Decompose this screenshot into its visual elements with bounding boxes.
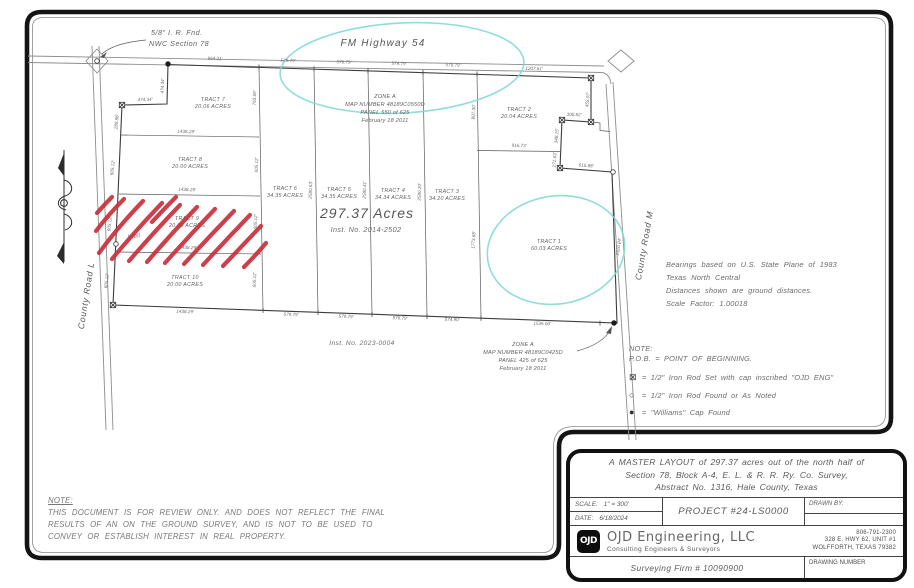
survey-plat-sheet: FM Highway 54 5/8" I. R. Fnd. NWC Sectio… <box>0 0 914 588</box>
svg-text:20.04 ACRES: 20.04 ACRES <box>500 114 537 120</box>
svg-text:1438.29': 1438.29' <box>178 187 196 193</box>
description-line1: A MASTER LAYOUT of 297.37 acres out of t… <box>609 456 864 469</box>
svg-text:MAP NUMBER 48189C0550D: MAP NUMBER 48189C0550D <box>345 102 425 108</box>
iron-rod-found-symbol <box>95 59 100 64</box>
iron-rod-set-symbol <box>588 119 593 124</box>
williams-cap-symbol <box>611 320 616 325</box>
iron-rod-set-symbol <box>110 302 115 307</box>
svg-text:TRACT 10: TRACT 10 <box>171 275 198 281</box>
tract-label-10: TRACT 1020.00 ACRES <box>166 275 203 288</box>
legend-item-text: = 1/2" Iron Rod Set with cap inscribed "… <box>642 373 833 382</box>
svg-text:TRACT 2: TRACT 2 <box>507 107 531 113</box>
legend-title: NOTE: <box>629 344 889 353</box>
svg-text:TRACT 1: TRACT 1 <box>537 239 561 245</box>
svg-text:1920.84': 1920.84' <box>615 238 622 256</box>
bearings-line4: Scale Factor: 1.00018 <box>666 297 906 310</box>
svg-text:PANEL 550 of 625: PANEL 550 of 625 <box>360 110 410 116</box>
corner-note-line1: 5/8" I. R. Fnd. <box>151 28 203 37</box>
corner-note-leader <box>100 40 146 58</box>
bearings-note: Bearings based on U.S. State Plane of 19… <box>666 258 906 310</box>
scale-cell: SCALE: 1" = 300' <box>570 498 662 512</box>
company-names: OJD Engineering, LLC Consulting Engineer… <box>607 530 777 553</box>
company-tagline: Consulting Engineers & Surveyors <box>607 546 777 553</box>
county-road-l-label: County Road L <box>76 261 96 329</box>
svg-text:February 18 2011: February 18 2011 <box>500 366 547 372</box>
tract-label-7: TRACT 720.06 ACRES <box>194 97 231 110</box>
legend-item-text: = "Williams" Cap Found <box>642 408 730 417</box>
svg-text:579.79': 579.79' <box>337 59 352 64</box>
svg-text:20.00 ACRES: 20.00 ACRES <box>166 282 203 288</box>
zone-north-label: ZONE A MAP NUMBER 48189C0550D PANEL 550 … <box>345 94 425 124</box>
review-line2: RESULTS OF AN ON THE GROUND SURVEY, AND … <box>48 519 448 531</box>
tract-label-4: TRACT 434.34 ACRES <box>375 188 411 201</box>
svg-text:579.79': 579.79' <box>284 312 299 318</box>
drawing-number-label: DRAWING NUMBER <box>805 557 903 578</box>
svg-text:300.82': 300.82' <box>567 112 582 118</box>
svg-text:474.34': 474.34' <box>160 78 166 93</box>
road-intersection-diamond-east <box>608 50 634 72</box>
svg-text:TRACT 4: TRACT 4 <box>381 188 405 194</box>
fm-highway-54-road <box>28 56 604 73</box>
bearings-line2: Texas North Central <box>666 271 906 284</box>
iron-rod-set-symbol <box>119 102 124 107</box>
svg-text:605.12': 605.12' <box>103 273 110 288</box>
iron-rod-set-symbol <box>559 117 564 122</box>
highway-label: FM Highway 54 <box>340 38 425 49</box>
svg-text:579.79': 579.79' <box>339 314 354 320</box>
drawn-by-value <box>805 514 903 525</box>
svg-text:1438.29': 1438.29' <box>176 309 194 315</box>
svg-text:605.12': 605.12' <box>109 160 116 175</box>
svg-text:February 18 2011: February 18 2011 <box>362 118 409 124</box>
svg-text:615.88': 615.88' <box>578 162 593 168</box>
company-address: 806-791-2300 328 E. HWY 62, UNIT #1 WOLF… <box>784 530 896 553</box>
tract-label-2: TRACT 220.04 ACRES <box>500 107 537 120</box>
williams-cap-icon: ● <box>629 407 642 417</box>
svg-text:574.90': 574.90' <box>445 317 460 323</box>
surveying-firm: Surveying Firm # 10090900 <box>570 557 805 578</box>
tract9-red-hatch <box>96 197 266 267</box>
county-road-m-label: County Road M <box>633 210 655 281</box>
legend-note: NOTE: P.O.B. = POINT OF BEGINNING. ⊠ = 1… <box>629 344 889 424</box>
svg-text:579.79': 579.79' <box>393 315 408 321</box>
company-name: OJD Engineering, LLC <box>607 530 777 545</box>
review-disclaimer: NOTE: THIS DOCUMENT IS FOR REVIEW ONLY. … <box>48 495 448 543</box>
svg-text:34.34 ACRES: 34.34 ACRES <box>375 195 411 201</box>
svg-text:289.86': 289.86' <box>113 114 120 130</box>
svg-text:271.63': 271.63' <box>551 152 557 168</box>
svg-text:474.34': 474.34' <box>137 97 152 102</box>
tract-label-6: TRACT 634.35 ACRES <box>267 186 303 199</box>
svg-text:807.30': 807.30' <box>471 104 477 119</box>
title-block-info-row: SCALE: 1" = 300' DATE: 6/18/2024 PROJECT… <box>570 498 903 526</box>
iron-rod-set-symbol <box>557 165 562 170</box>
zone-south-leader <box>577 326 612 351</box>
south-instrument: Inst. No. 2023-0004 <box>329 340 395 347</box>
svg-text:2580.20': 2580.20' <box>417 183 423 202</box>
tract-label-5: TRACT 534.35 ACRES <box>321 187 357 200</box>
iron-rod-set-symbol <box>588 75 593 80</box>
title-block-bottom-row: Surveying Firm # 10090900 DRAWING NUMBER <box>570 557 903 578</box>
svg-text:579.79': 579.79' <box>392 61 407 66</box>
total-acreage-label: 297.37 Acres <box>319 205 414 221</box>
review-title: NOTE: <box>48 495 448 507</box>
iron-rod-found-icon: ○ <box>629 390 642 400</box>
drawn-by-cell: DRAWN BY: <box>805 498 903 525</box>
svg-text:2580.41': 2580.41' <box>362 181 368 200</box>
svg-text:579.79': 579.79' <box>281 58 296 63</box>
scale-value: 1" = 300' <box>604 501 629 508</box>
svg-text:2580.63': 2580.63' <box>308 181 314 200</box>
iron-rod-found-symbol <box>611 170 616 175</box>
svg-text:60.03 ACRES: 60.03 ACRES <box>531 246 567 252</box>
zone-south-label: ZONE A MAP NUMBER 48189C0425D PANEL 425 … <box>483 342 563 372</box>
corner-note-line2: NWC Section 78 <box>149 39 209 48</box>
svg-text:1773.68': 1773.68' <box>471 231 477 249</box>
bearings-line1: Bearings based on U.S. State Plane of 19… <box>666 258 906 271</box>
company-phone: 806-791-2300 <box>784 530 896 538</box>
company-address-line1: 328 E. HWY 62, UNIT #1 <box>784 537 896 545</box>
project-number: PROJECT #24-LS0000 <box>663 498 805 525</box>
tract-label-8: TRACT 820.00 ACRES <box>171 157 208 170</box>
svg-text:ZONE A: ZONE A <box>373 94 396 100</box>
bearings-line3: Distances shown are ground distances. <box>666 284 906 297</box>
review-line3: CONVEY OR ESTABLISH INTEREST IN REAL PRO… <box>48 531 448 543</box>
iron-rod-set-icon: ⊠ <box>629 372 642 383</box>
svg-text:TRACT 5: TRACT 5 <box>327 187 351 193</box>
williams-cap-symbol <box>165 61 170 66</box>
company-row: OJD OJD Engineering, LLC Consulting Engi… <box>570 526 903 557</box>
svg-text:1535.00': 1535.00' <box>533 321 551 327</box>
company-logo: OJD <box>577 530 600 553</box>
svg-text:20.00 ACRES: 20.00 ACRES <box>171 164 208 170</box>
drawn-by-label: DRAWN BY: <box>805 498 903 514</box>
svg-text:TRACT 7: TRACT 7 <box>201 97 226 103</box>
svg-text:605.12': 605.12' <box>252 272 258 287</box>
north-arrow <box>57 150 72 264</box>
legend-item-iron-rod-found: ○ = 1/2" Iron Rod Found or As Noted <box>629 390 889 400</box>
svg-text:348.15': 348.15' <box>553 128 559 143</box>
svg-text:20.06 ACRES: 20.06 ACRES <box>194 104 231 110</box>
tract-label-1: TRACT 160.03 ACRES <box>531 239 567 252</box>
svg-text:34.35 ACRES: 34.35 ACRES <box>321 194 357 200</box>
svg-text:455.07': 455.07' <box>584 92 591 107</box>
svg-text:605.12': 605.12' <box>254 157 260 172</box>
total-acreage-instrument: Inst. No. 2014-2502 <box>331 225 402 234</box>
svg-text:916.73': 916.73' <box>512 143 527 149</box>
svg-text:MAP NUMBER 48189C0425D: MAP NUMBER 48189C0425D <box>483 350 563 356</box>
description-line2: Section 78, Block A-4, E. L. & R. R. Ry.… <box>625 469 848 482</box>
title-block-description: A MASTER LAYOUT of 297.37 acres out of t… <box>570 453 903 498</box>
svg-text:TRACT 8: TRACT 8 <box>178 157 202 163</box>
svg-text:763.69': 763.69' <box>252 90 258 105</box>
legend-pob: P.O.B. = POINT OF BEGINNING. <box>629 354 889 363</box>
date-value: 6/18/2024 <box>599 515 627 522</box>
date-cell: DATE: 6/18/2024 <box>570 512 662 525</box>
scale-date-cells: SCALE: 1" = 300' DATE: 6/18/2024 <box>570 498 663 525</box>
iron-rod-found-symbol <box>114 242 119 247</box>
legend-item-williams-cap: ● = "Williams" Cap Found <box>629 407 889 417</box>
svg-text:34.20 ACRES: 34.20 ACRES <box>429 196 465 202</box>
svg-text:1438.29': 1438.29' <box>177 129 195 135</box>
date-label: DATE: <box>575 515 593 522</box>
company-address-line2: WOLFFORTH, TEXAS 79382 <box>784 545 896 553</box>
svg-text:PANEL 425 of 625: PANEL 425 of 625 <box>498 358 548 364</box>
svg-text:TRACT 6: TRACT 6 <box>273 186 297 192</box>
svg-text:TRACT 3: TRACT 3 <box>435 189 459 195</box>
legend-item-text: = 1/2" Iron Rod Found or As Noted <box>642 391 776 400</box>
review-line1: THIS DOCUMENT IS FOR REVIEW ONLY. AND DO… <box>48 507 448 519</box>
title-block: A MASTER LAYOUT of 297.37 acres out of t… <box>566 449 907 582</box>
svg-text:ZONE A: ZONE A <box>511 342 534 348</box>
tract-label-3: TRACT 334.20 ACRES <box>429 189 465 202</box>
description-line3: Abstract No. 1316, Hale County, Texas <box>655 481 818 494</box>
svg-text:34.35 ACRES: 34.35 ACRES <box>267 193 303 199</box>
svg-text:964.21': 964.21' <box>208 56 223 61</box>
scale-label: SCALE: <box>575 501 598 508</box>
legend-item-iron-rod-set: ⊠ = 1/2" Iron Rod Set with cap inscribed… <box>629 372 889 383</box>
svg-text:1207.61': 1207.61' <box>525 66 543 71</box>
svg-text:579.79': 579.79' <box>446 62 461 67</box>
